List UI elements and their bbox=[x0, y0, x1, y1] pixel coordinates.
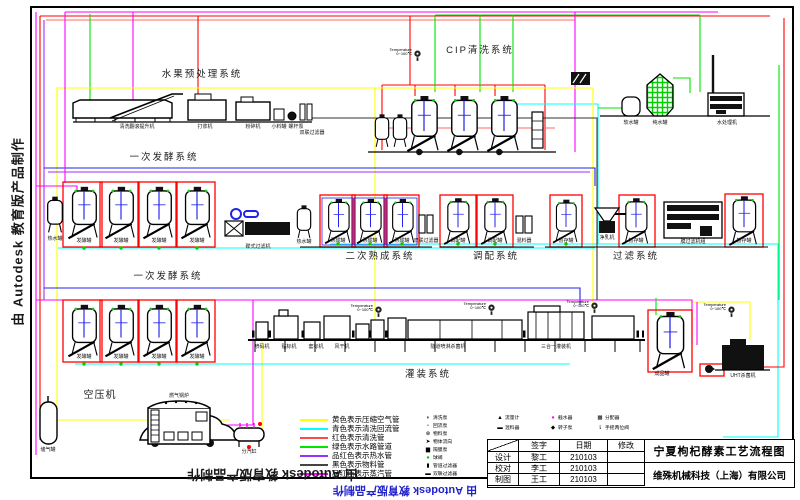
title-block-cell bbox=[608, 463, 645, 474]
label-buffer-tank: 暂存罐 bbox=[736, 239, 751, 245]
legend-line: 黄色表示压缩空气管 bbox=[300, 415, 400, 424]
label-filler: 三合一灌装机 bbox=[541, 345, 571, 351]
label-wash-lift: 清洗翻滚提升机 bbox=[119, 125, 154, 131]
gauge-text-fill1: Temperature0~100℃ bbox=[351, 304, 373, 313]
label-membrane: 膜过滤机组 bbox=[680, 240, 705, 246]
gauge-icon-fill3 bbox=[591, 303, 597, 313]
label-ferment2-system: 一次发酵系统 bbox=[133, 272, 202, 282]
gauge-text-cip: Temperature0~100℃ bbox=[390, 48, 412, 57]
label-sterilizer: UHT杀菌机 bbox=[730, 374, 755, 380]
legend-line: 品红色表示热水管 bbox=[300, 451, 392, 460]
label-ferment1-system: 一次发酵系统 bbox=[129, 153, 198, 163]
small-tank bbox=[274, 109, 284, 120]
label-air-compressor: 空压机 bbox=[84, 390, 117, 401]
label-fruit-system: 水果预处理系统 bbox=[162, 70, 243, 80]
pulper-machine bbox=[188, 100, 226, 120]
water-treatment bbox=[600, 74, 770, 116]
title-block-header-date: 日期 bbox=[560, 440, 608, 452]
label-crusher: 粉碎机 bbox=[245, 125, 260, 131]
legend-symbol: ▩分配器 bbox=[596, 416, 619, 422]
label-gas-boiler: 燃气锅炉 bbox=[169, 394, 189, 400]
legend-symbol: ◗清洗泵 bbox=[424, 416, 447, 422]
label-sleever: 套标机 bbox=[308, 345, 323, 351]
label-disc-filter: 碟式过滤机 bbox=[245, 245, 270, 251]
legend-symbol: ◆转子泵 bbox=[549, 426, 572, 432]
label-duplex-filter: 双联过滤器 bbox=[299, 131, 324, 137]
title-block: 签字 日期 修改 宁夏枸杞酵素工艺流程图 设计 黎工 210103 校对 李工 … bbox=[487, 439, 795, 488]
label-ferment-tank: 发酵罐 bbox=[151, 239, 166, 245]
temperature-gauges bbox=[375, 51, 734, 317]
label-air-tank: 储气罐 bbox=[40, 448, 55, 454]
legend-symbol: ⊗物料泵 bbox=[424, 432, 447, 438]
label-ferment-tank: 发酵罐 bbox=[113, 355, 128, 361]
label-product-tank: 成品罐 bbox=[654, 372, 669, 378]
hot-water-tank2 bbox=[297, 205, 310, 238]
label-filling-system: 灌装系统 bbox=[405, 370, 451, 380]
title-block-header-sign: 签字 bbox=[519, 440, 560, 452]
soft-water-tank bbox=[622, 97, 640, 116]
gauge-text-uht: Temperature0~100℃ bbox=[704, 303, 726, 312]
title-block-cell bbox=[608, 474, 645, 486]
label-mature-tank: 熟成罐 bbox=[330, 239, 345, 245]
label-labeler: 贴标机 bbox=[281, 345, 296, 351]
hot-water-tank bbox=[48, 197, 63, 233]
label-hot-tank2: 热水罐 bbox=[296, 240, 311, 246]
title-block-cell: 210103 bbox=[560, 474, 608, 486]
label-mixer: 混料器 bbox=[516, 239, 531, 245]
label-ferment-tank: 发酵罐 bbox=[151, 355, 166, 361]
label-filter-system: 过滤系统 bbox=[613, 252, 659, 262]
autodesk-watermark-left: 由 Autodesk 教育版产品制作 bbox=[8, 127, 27, 337]
title-block-cell: 210103 bbox=[560, 452, 608, 463]
title-block-header-mod: 修改 bbox=[608, 440, 645, 452]
gauge-text-fill2: Temperature0~100℃ bbox=[464, 302, 486, 311]
company-name: 维殊机械科技（上海）有限公司 bbox=[645, 463, 794, 486]
duplex-filter2 bbox=[419, 215, 425, 233]
mixer-device bbox=[516, 216, 523, 233]
gauge-icon-uht bbox=[728, 307, 734, 317]
filtration-system bbox=[545, 196, 768, 247]
label-coder: 喷码机 bbox=[254, 345, 269, 351]
legend-symbol: ●球阀 bbox=[424, 456, 443, 462]
label-steam-header: 分汽缸 bbox=[241, 450, 256, 456]
gauge-icon-fill1 bbox=[375, 307, 381, 317]
label-secondary-system: 二次熟成系统 bbox=[345, 252, 414, 262]
title-block-cell bbox=[608, 452, 645, 463]
label-mature-tank: 熟成罐 bbox=[394, 239, 409, 245]
label-pure-tank: 纯水罐 bbox=[652, 121, 667, 127]
title-block-cell: 设计 bbox=[488, 452, 519, 463]
dryer-machine bbox=[324, 316, 350, 339]
label-soft-tank: 软水罐 bbox=[623, 121, 638, 127]
label-buffer-tank: 暂存罐 bbox=[558, 239, 573, 245]
label-duplex-filter2: 双联过滤器 bbox=[413, 239, 438, 245]
legend-symbol: ●截水器 bbox=[549, 416, 572, 422]
uht-sterilizer bbox=[722, 345, 764, 370]
label-ferment-tank: 发酵罐 bbox=[189, 355, 204, 361]
label-ferment-tank: 发酵罐 bbox=[113, 239, 128, 245]
label-ferment-tank: 发酵罐 bbox=[76, 239, 91, 245]
drawing-title: 宁夏枸杞酵素工艺流程图 bbox=[645, 440, 794, 463]
tunnel-sterilizer-machine bbox=[408, 320, 522, 339]
air-receiver-tank bbox=[40, 402, 57, 444]
autodesk-watermark-blue: 由 Autodesk 教育版产品制作 bbox=[330, 483, 480, 499]
steam-header-unit bbox=[234, 422, 264, 449]
label-small-tank: 小料罐 bbox=[271, 125, 286, 131]
label-blend-tank: 调配罐 bbox=[487, 239, 502, 245]
label-ferment-tank: 发酵罐 bbox=[189, 239, 204, 245]
gauge-icon-cip bbox=[414, 51, 420, 61]
label-mature-tank: 熟成罐 bbox=[362, 239, 377, 245]
screw-pump bbox=[288, 112, 296, 120]
gauge-text-fill3: Temperature0~100℃ bbox=[567, 300, 589, 309]
labeler-machine bbox=[274, 316, 298, 339]
coder-machine bbox=[256, 322, 268, 339]
gauge-icon-fill2 bbox=[488, 305, 494, 315]
product-pump bbox=[705, 365, 715, 373]
title-block-cell: 黎工 bbox=[519, 452, 560, 463]
pure-water-tank bbox=[647, 74, 673, 116]
fermentation-row1 bbox=[48, 187, 290, 239]
legend-symbol: ▆隔膜泵 bbox=[424, 448, 447, 454]
title-block-cell: 王工 bbox=[519, 474, 560, 486]
legend-line: 红色表示清洗管 bbox=[300, 433, 385, 442]
pipe-blue-row1 bbox=[44, 168, 595, 186]
label-hot-tank: 热水罐 bbox=[47, 237, 62, 243]
title-block-cell: 制图 bbox=[488, 474, 519, 486]
label-dryer: 风干机 bbox=[334, 345, 349, 351]
title-block-cell: 210103 bbox=[560, 463, 608, 474]
crusher-machine bbox=[236, 102, 270, 120]
sleever-machine bbox=[304, 322, 320, 339]
label-clarifier: 净乳机 bbox=[599, 236, 614, 242]
steam-header-body bbox=[234, 428, 264, 441]
product-tank bbox=[653, 312, 685, 369]
title-block-cell: 李工 bbox=[519, 463, 560, 474]
diagram-canvas bbox=[0, 0, 800, 500]
legend-symbol: ▲流量计 bbox=[496, 416, 519, 422]
label-tunnel: 隧道喷淋杀菌机 bbox=[430, 345, 465, 351]
label-water-machine: 水处理机 bbox=[717, 121, 737, 127]
disc-filter-body bbox=[245, 222, 290, 235]
title-block-cell: 校对 bbox=[488, 463, 519, 474]
legend-line: 青色表示清洗回流管 bbox=[300, 424, 400, 433]
legend-symbol: ▬混料器 bbox=[496, 426, 519, 432]
legend-symbol: ⇂手摇两位阀 bbox=[596, 426, 629, 432]
legend-line: 绿色表示水路管道 bbox=[300, 442, 392, 451]
label-cip-system: CIP清洗系统 bbox=[446, 46, 514, 56]
fruit-pretreatment-line bbox=[73, 94, 312, 122]
label-ferment-tank: 发酵罐 bbox=[76, 355, 91, 361]
legend-symbol: ▪回流泵 bbox=[424, 424, 447, 430]
label-pulper: 打浆机 bbox=[197, 125, 212, 131]
duplex-filter bbox=[300, 104, 305, 120]
pipe-blue-row2 bbox=[44, 288, 580, 305]
label-blend-system: 调配系统 bbox=[473, 252, 519, 262]
label-blend-tank: 调配罐 bbox=[450, 239, 465, 245]
process-flow-drawing: { "doc": { "title": "宁夏枸杞酵素工艺流程图", "comp… bbox=[0, 0, 800, 500]
legend-symbol: ➤物体流向 bbox=[424, 440, 452, 446]
gas-boiler-unit bbox=[148, 401, 210, 444]
label-buffer-tank: 暂存罐 bbox=[628, 239, 643, 245]
capper-machine bbox=[592, 316, 634, 339]
title-block-diagonal bbox=[488, 440, 519, 452]
